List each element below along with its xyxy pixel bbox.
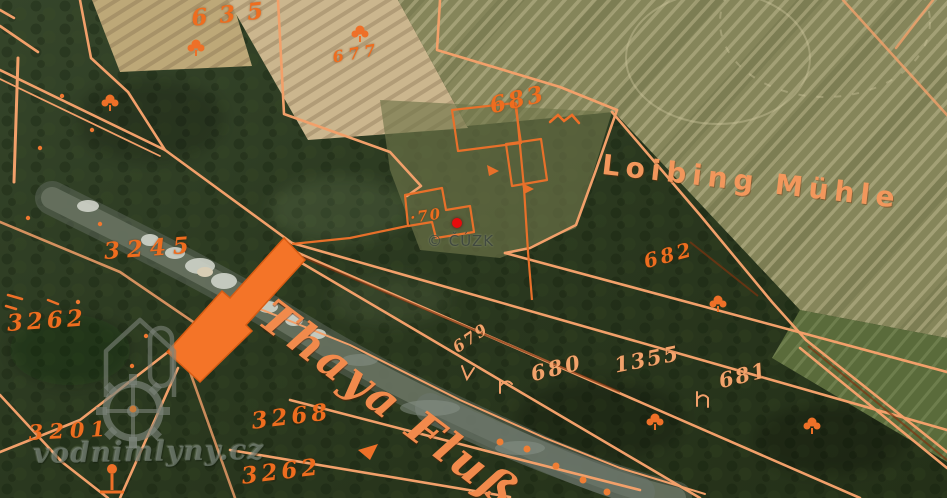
selected-mill-marker[interactable]: [452, 218, 462, 228]
map-canvas[interactable]: 635 677 683 Loibing Mühle ·70 682 Thaya …: [0, 0, 947, 498]
waterwheel-icon: [96, 374, 170, 448]
watermill-watermark: [0, 0, 947, 498]
